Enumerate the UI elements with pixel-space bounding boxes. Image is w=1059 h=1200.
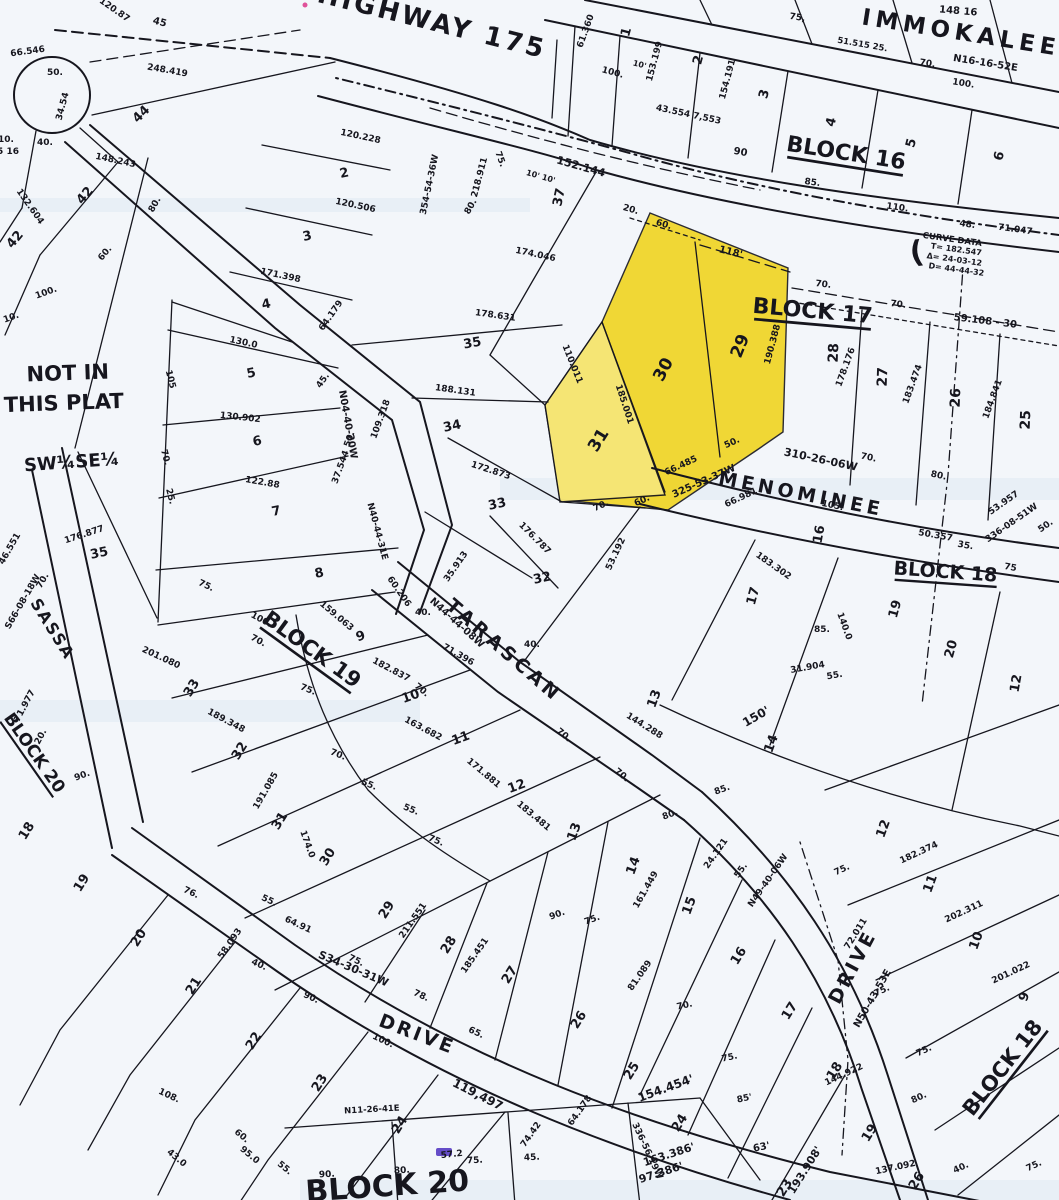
dimension-51-515-25: 51.515 25.: [836, 36, 888, 55]
dimension-40: 40.: [952, 1160, 971, 1176]
dimension-70: 70.: [860, 451, 878, 464]
lot-number-35: 35: [89, 544, 110, 562]
dimension-20: 20.: [33, 728, 49, 747]
dimension-70: 70.: [919, 58, 936, 70]
dimension-218-911: 218.911: [470, 156, 490, 198]
dimension-45: 45.: [524, 1153, 540, 1164]
bearing-n16-16-52e: N16-16-52E: [952, 53, 1018, 74]
dimension-53-192: 53.192: [604, 536, 628, 572]
pen-annotation-57-2: 57.2: [440, 1149, 463, 1161]
dimension-137-092: 137.092: [874, 1159, 916, 1177]
dimension-130-0: 130.0: [228, 335, 258, 351]
dimension-172-873: 172.873: [470, 460, 512, 482]
dimension-75: 75: [1003, 562, 1017, 574]
lot-number-11: 11: [450, 729, 472, 749]
dimension-37-544: 37.544: [330, 449, 351, 485]
lot-number-30: 30: [317, 845, 339, 868]
dimension-35: 35.: [957, 540, 974, 553]
dimension-152-144: 152.144: [555, 153, 607, 179]
dimension-174-0: 174.0: [297, 829, 316, 859]
dimension-55: 55.: [826, 670, 843, 683]
lot-number-29: 29: [376, 898, 398, 921]
dimension-70: 70.: [815, 279, 832, 291]
lot-number-27: 27: [499, 963, 521, 986]
lot-number-17: 17: [744, 585, 763, 606]
lot-number-3: 3: [301, 228, 313, 245]
dimension-144-288: 144.288: [624, 711, 664, 741]
dimension-66-546: 66.546: [10, 45, 46, 60]
bearing-n11-26-41e: N11-26-41E: [344, 1104, 400, 1117]
dimension-64-178: 64.178: [566, 1094, 594, 1128]
dimension-119-497: 119,497: [450, 1076, 505, 1113]
dimension-182-837: 182.837: [370, 656, 411, 684]
dimension-75: 75.: [721, 1051, 739, 1064]
street-name-highway-175: HIGHWAY 175: [314, 0, 549, 65]
dimension-176-787: 176.787: [516, 521, 552, 557]
lot-number-28: 28: [438, 933, 460, 956]
street-name-sassa: SASSA: [26, 595, 78, 663]
lot-number-3: 3: [756, 88, 773, 101]
dimension-191-085: 191.085: [252, 771, 281, 812]
dimension-75: 75.: [1025, 1158, 1044, 1174]
dimension-70: 70.: [890, 299, 907, 311]
dimension-154-191: 154.191: [718, 58, 738, 100]
lot-number-14: 14: [624, 855, 644, 877]
dimension-153-199: 153.199: [645, 40, 665, 82]
lot-number-19: 19: [886, 598, 905, 619]
dimension-95-0: 95.0: [238, 1144, 261, 1166]
lot-number-8: 8: [313, 565, 325, 582]
dimension-46-551: 46.551: [0, 531, 23, 566]
dimension-40: 40.: [250, 957, 269, 973]
dimension-182-374: 182.374: [898, 840, 939, 866]
dimension-80: 80.: [910, 1090, 929, 1106]
dimension-61-360: 61.360: [575, 13, 596, 49]
dimension-43-554-7-553: 43.554 7,553: [655, 103, 722, 127]
lot-number-6: 6: [991, 150, 1008, 163]
dimension-80: 80.: [394, 1166, 410, 1177]
dimension-70: 70.: [158, 448, 172, 466]
dimension-10: 10.: [2, 311, 20, 326]
dimension-80: 80.: [661, 808, 679, 823]
dimension-171-881: 171.881: [464, 756, 502, 790]
lot-number-15: 15: [680, 895, 700, 917]
dimension-74-42: 74.42: [519, 1120, 544, 1149]
plat-map-canvas: HIGHWAY 175IMMOKALEEMENOMINEETARASCANDRI…: [0, 0, 1059, 1200]
dimension-20: 20.: [622, 203, 640, 217]
dimension-55: 55.: [359, 778, 378, 793]
dimension-75: 75.: [492, 150, 507, 168]
dimension-45: 45.: [315, 371, 332, 390]
dimension-163-682: 163.682: [402, 715, 443, 743]
dimension-10: 10.: [0, 135, 14, 145]
lot-number-2: 2: [338, 165, 350, 182]
lot-number-17: 17: [779, 999, 801, 1022]
plat-map-page: HIGHWAY 175IMMOKALEEMENOMINEETARASCANDRI…: [0, 0, 1059, 1200]
lot-number-12: 12: [874, 818, 894, 840]
dimension-90: 90.: [319, 1170, 335, 1181]
dimension-40: 40.: [37, 138, 53, 148]
lot-number-2: 2: [690, 54, 707, 67]
lot-number-19: 19: [71, 871, 93, 894]
block-label-block-18: BLOCK 18: [958, 1015, 1048, 1120]
dimension-50: 50.: [47, 68, 63, 78]
dimension-90: 90.: [73, 769, 91, 784]
dimension-90: 90.: [302, 990, 321, 1006]
dimension-184-841: 184.841: [981, 378, 1004, 420]
street-name-drive: DRIVE: [376, 1010, 459, 1059]
dimension-55: 55.: [733, 861, 750, 880]
lot-number-33: 33: [181, 676, 203, 699]
dimension-183-481: 183.481: [514, 799, 552, 833]
dimension-70: 70.: [35, 572, 52, 591]
scan-artifacts: [0, 198, 1059, 1200]
bearing-n04-40-20w: N04-40-20W: [336, 389, 359, 459]
dimension-150: 150': [740, 703, 772, 729]
dimension-78: 78.: [412, 988, 431, 1004]
dimension-25: 25.: [163, 487, 177, 505]
lot-number-21: 21: [183, 974, 205, 997]
dimension-60: 60.: [232, 1128, 251, 1146]
pink-dot: [303, 3, 308, 8]
area-note-this-plat: THIS PLAT: [3, 389, 124, 417]
area-note-sw-se: SW¼SE¼: [23, 449, 120, 477]
dimension-122-88: 122.88: [244, 475, 280, 491]
dimension-178-631: 178.631: [474, 308, 516, 324]
dimension-201-080: 201.080: [140, 645, 181, 671]
bearing-310-26-06w: 310-26-06W: [783, 445, 859, 473]
lot-number-27: 27: [875, 367, 892, 387]
lot-number-16: 16: [728, 944, 750, 967]
dimension-159-063: 159.063: [317, 599, 355, 633]
dimension-64-179: 64.179: [317, 299, 345, 333]
dimension-211-551: 211.551: [398, 901, 430, 940]
dimension-85: 85': [736, 1093, 753, 1106]
dimension-100: 100.: [600, 65, 624, 80]
dimension-70: 70.: [249, 633, 268, 649]
dimension-85: 85.: [814, 625, 830, 635]
dimension-85: 85.: [713, 783, 731, 798]
dimension-55: 55.: [275, 1160, 294, 1178]
dimension-10-10: 10' 10': [525, 168, 556, 185]
dimension-75: 75.: [583, 913, 601, 928]
dimension-201-022: 201.022: [990, 960, 1031, 986]
lot-number-32: 32: [229, 739, 251, 762]
lot-number-4: 4: [260, 296, 272, 313]
lot-number-12: 12: [1008, 673, 1026, 693]
dimension-183-302: 183.302: [753, 551, 792, 583]
lot-number-7: 7: [270, 503, 282, 520]
dimension-140-0: 140.0: [834, 611, 853, 641]
dimension-71-396: 71.396: [440, 642, 475, 668]
dimension-248-419: 248.419: [146, 63, 188, 80]
dimension-35-913: 35.913: [442, 550, 470, 584]
lot-number-25: 25: [621, 1059, 643, 1082]
lot-number-31: 31: [269, 809, 291, 832]
lot-number-5: 5: [903, 137, 920, 150]
lot-number-23: 23: [309, 1071, 331, 1094]
lot-number-18: 18: [16, 819, 38, 842]
dimension-59-108-30: 59.108 - 30: [953, 312, 1018, 331]
lot-number-33: 33: [487, 495, 508, 513]
lot-number-26: 26: [948, 388, 965, 408]
dimension-188-131: 188.131: [434, 383, 476, 399]
dimension-110: 110.: [886, 202, 909, 215]
lot-number-13: 13: [565, 821, 585, 843]
lot-number-22: 22: [243, 1029, 265, 1052]
dimension-75: 75.: [915, 1043, 934, 1059]
lot-number-10: 10: [967, 930, 987, 952]
dimension-70: 70.: [676, 999, 694, 1012]
dimension-120-228: 120.228: [339, 128, 381, 146]
dimension-75: 75.: [426, 834, 445, 849]
dimension-171-398: 171.398: [259, 267, 301, 285]
dimension-65: 65.: [467, 1025, 486, 1041]
dimension-55: 55.: [401, 803, 420, 818]
dimension-130-902: 130.902: [219, 411, 261, 425]
lot-number-16: 16: [811, 524, 829, 544]
dimension-81-089: 81.089: [626, 959, 654, 993]
dimension-64-91: 64.91: [283, 915, 313, 936]
dimension-75: 75.: [197, 578, 216, 594]
lot-number-4: 4: [823, 116, 840, 129]
dimension-108: 108.: [157, 1087, 181, 1105]
lot-number-11: 11: [921, 873, 941, 895]
dimension-202-311: 202.311: [943, 899, 984, 925]
lot-number-9: 9: [1016, 990, 1033, 1004]
block-label-block-20: BLOCK 20: [0, 709, 69, 797]
lot-number-14: 14: [762, 733, 782, 755]
lot-number-37: 37: [550, 187, 568, 208]
dimension-100: 100.: [952, 77, 976, 90]
dimension-45: 45: [151, 15, 167, 29]
dimension-48: 48.: [959, 219, 976, 231]
dimension-183-474: 183.474: [901, 363, 924, 405]
lot-number-35: 35: [462, 335, 482, 353]
block-label-block-16: BLOCK 16: [785, 132, 908, 175]
dimension-90: 90.: [548, 908, 566, 923]
area-note-not-in: NOT IN: [26, 360, 109, 387]
dimension-50: 50.: [1036, 518, 1055, 535]
parcel-lines: [0, 0, 1059, 1200]
dimension-76: 76.: [182, 885, 201, 901]
lot-number-5: 5: [245, 365, 257, 382]
lot-number-9: 9: [354, 628, 368, 645]
lot-number-12: 12: [506, 777, 528, 797]
dimension-40: 40.: [524, 640, 540, 650]
lot-number-20: 20: [128, 926, 150, 949]
dimension-5-16: 5 16: [0, 147, 19, 157]
block-label-block-19: BLOCK 19: [259, 606, 366, 693]
dimension-63: 63': [752, 1140, 771, 1154]
dimension-100: 100.: [34, 285, 58, 302]
dimension-176-877: 176.877: [63, 524, 105, 546]
dimension-70: 70.: [328, 748, 347, 763]
dimension-148-243: 148.243: [94, 152, 136, 170]
lot-number-32: 32: [532, 569, 553, 587]
dimension-71-047: 71.047: [997, 223, 1033, 238]
bearing-n40-44-31e: N40-44-31E: [365, 502, 390, 561]
dimension-120-87: 120.87: [97, 0, 131, 24]
lot-number-6: 6: [251, 433, 263, 450]
lot-number-20: 20: [942, 638, 961, 659]
dimension-50-357: 50.357: [917, 528, 953, 544]
dimension-75: 75.: [467, 1156, 483, 1167]
block-label-block-20: BLOCK 20: [304, 1163, 470, 1200]
lot-number-19: 19: [859, 1121, 881, 1144]
dimension-154-454: 154.454': [636, 1072, 696, 1105]
dimension-174-046: 174.046: [514, 246, 556, 264]
dimension-60: 60.: [97, 244, 115, 263]
lot-number-25: 25: [1018, 410, 1035, 430]
dimension-90: 90: [733, 146, 749, 159]
dimension-75: 75.: [833, 862, 852, 878]
dimension-43-0: 43.0: [165, 1147, 188, 1169]
lot-number-34: 34: [442, 417, 463, 435]
dimension-34-54: 34.54: [55, 91, 72, 121]
dimension-10: 10': [632, 58, 647, 70]
dimension-31-904: 31.904: [790, 660, 826, 676]
dimension-75: 75,: [789, 12, 806, 24]
dimension-75: 75.: [298, 683, 317, 698]
dimension-40: 40.: [415, 608, 431, 618]
lot-number-28: 28: [826, 343, 843, 363]
dimension-105: 105: [163, 369, 178, 390]
